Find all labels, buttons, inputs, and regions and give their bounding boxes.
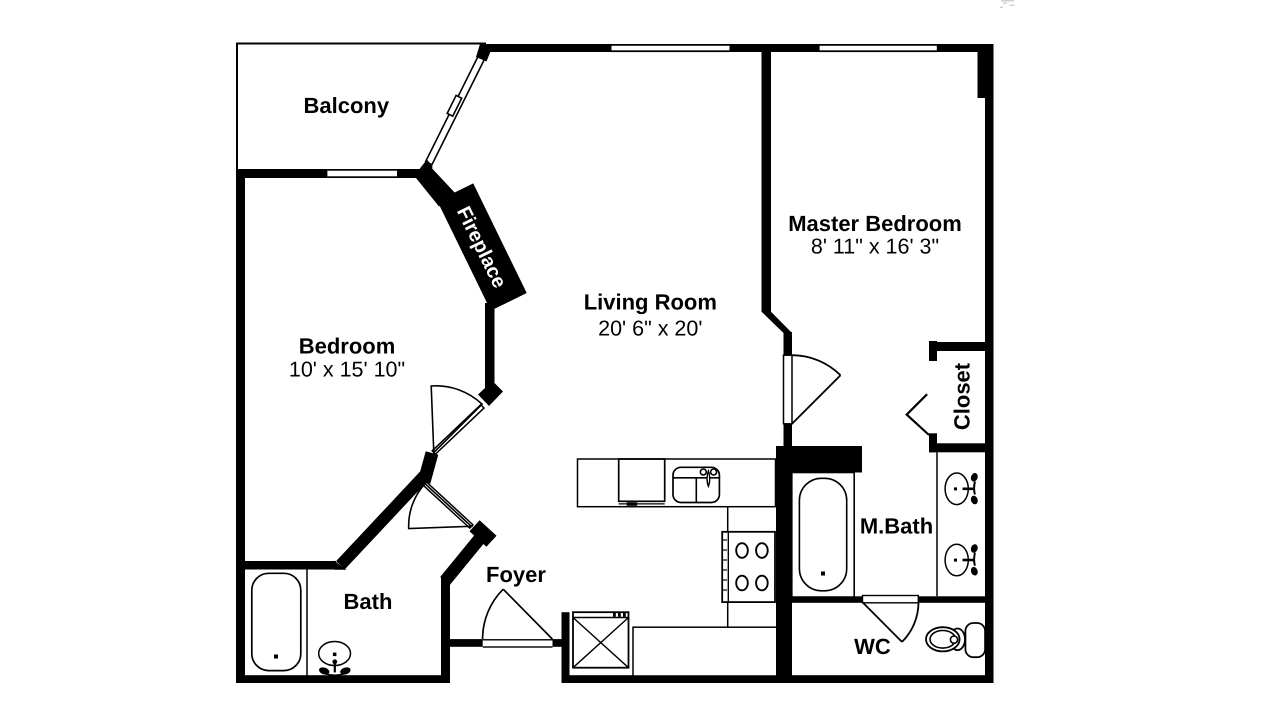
svg-text:Balcony: Balcony: [304, 93, 390, 118]
svg-text:Closet: Closet: [950, 362, 975, 430]
svg-text:WC: WC: [854, 634, 891, 659]
svg-text:Living Room: Living Room: [584, 289, 717, 314]
svg-text:Bath: Bath: [344, 589, 393, 614]
svg-text:8' 11" x 16' 3": 8' 11" x 16' 3": [811, 234, 939, 258]
svg-text:Foyer: Foyer: [486, 562, 546, 587]
svg-text:M.Bath: M.Bath: [860, 514, 933, 539]
svg-text:Bedroom: Bedroom: [299, 334, 396, 359]
svg-text:10' x 15' 10": 10' x 15' 10": [289, 358, 405, 382]
svg-text:20' 6" x 20': 20' 6" x 20': [598, 317, 702, 341]
svg-text:Master Bedroom: Master Bedroom: [788, 211, 962, 236]
